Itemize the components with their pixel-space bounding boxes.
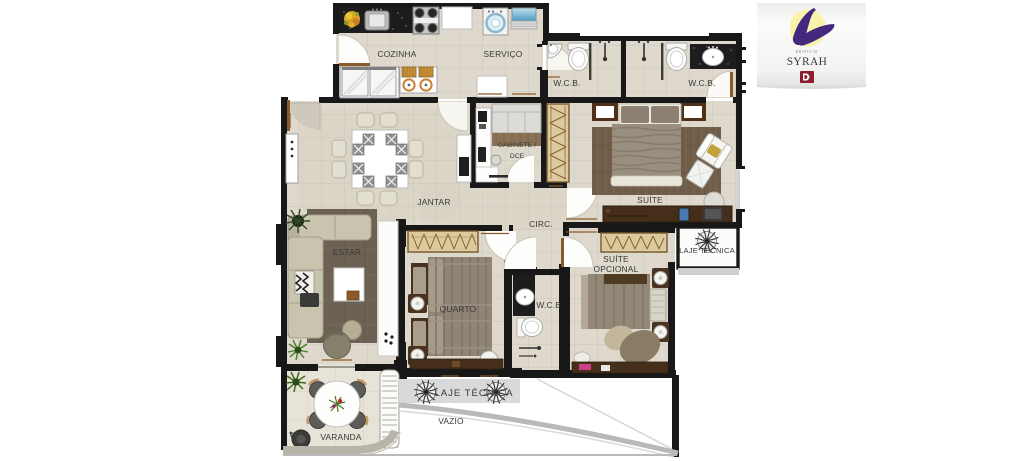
- svg-text:OPCIONAL: OPCIONAL: [594, 264, 639, 274]
- svg-text:W.C.B.: W.C.B.: [553, 78, 580, 88]
- svg-text:SERVIÇO: SERVIÇO: [484, 49, 523, 59]
- svg-text:LAJE TÉCNICA: LAJE TÉCNICA: [435, 388, 514, 399]
- svg-text:SUÍTE: SUÍTE: [603, 254, 629, 264]
- svg-text:EDIFÍCIO: EDIFÍCIO: [796, 50, 819, 54]
- svg-text:VARANDA: VARANDA: [320, 432, 361, 442]
- svg-text:DCE: DCE: [510, 153, 525, 160]
- svg-text:JANTAR: JANTAR: [417, 197, 450, 207]
- svg-text:QUARTO: QUARTO: [440, 304, 477, 314]
- svg-text:LAJE TÉCNICA: LAJE TÉCNICA: [679, 246, 736, 255]
- svg-text:COZINHA: COZINHA: [377, 49, 416, 59]
- svg-text:CIRC.: CIRC.: [529, 219, 553, 229]
- svg-text:W.C.B.: W.C.B.: [688, 78, 715, 88]
- svg-text:VAZIO: VAZIO: [438, 416, 464, 426]
- svg-text:GABINETE /: GABINETE /: [498, 142, 536, 149]
- svg-text:SUÍTE: SUÍTE: [637, 195, 663, 205]
- svg-text:SYRAH: SYRAH: [787, 56, 828, 68]
- svg-text:ESTAR: ESTAR: [333, 247, 361, 257]
- svg-text:W.C.B.: W.C.B.: [536, 300, 563, 310]
